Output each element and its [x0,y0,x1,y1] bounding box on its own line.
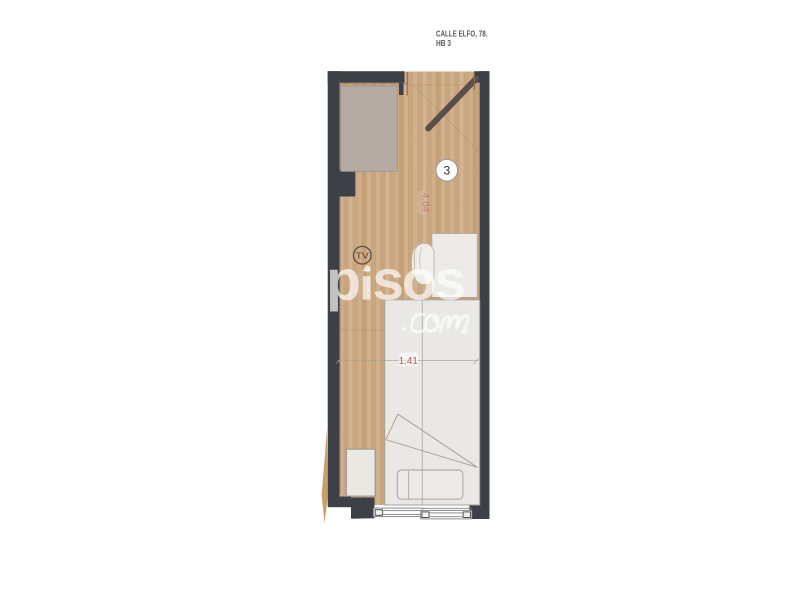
svg-text:4.04: 4.04 [420,193,431,213]
svg-text:CALLE ELFO, 78.: CALLE ELFO, 78. [436,29,488,38]
svg-text:pısos: pısos [326,249,464,313]
svg-text:3: 3 [443,163,450,177]
svg-text:HB 3: HB 3 [436,39,452,48]
svg-text:1.41: 1.41 [399,356,418,367]
